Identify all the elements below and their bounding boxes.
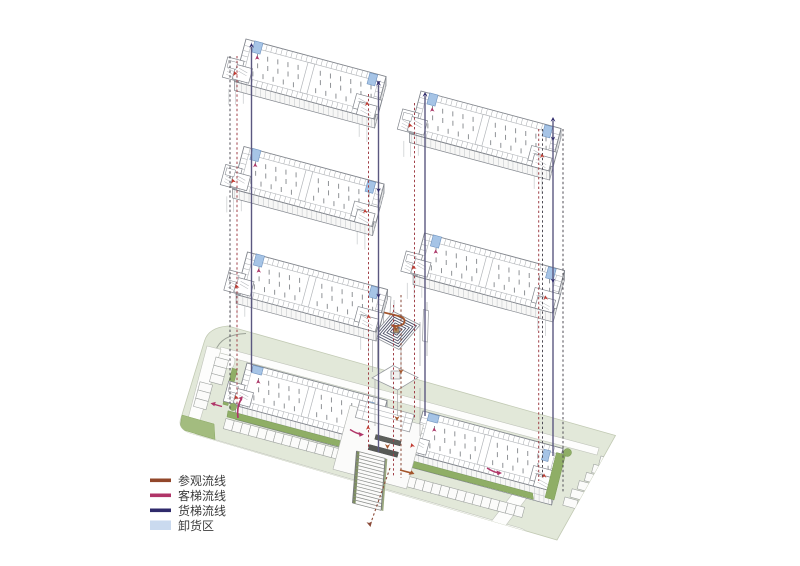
svg-text:客梯流线: 客梯流线	[178, 488, 226, 503]
svg-text:货梯流线: 货梯流线	[178, 503, 226, 518]
svg-text:参观流线: 参观流线	[178, 473, 226, 488]
svg-text:卸货区: 卸货区	[178, 518, 214, 533]
